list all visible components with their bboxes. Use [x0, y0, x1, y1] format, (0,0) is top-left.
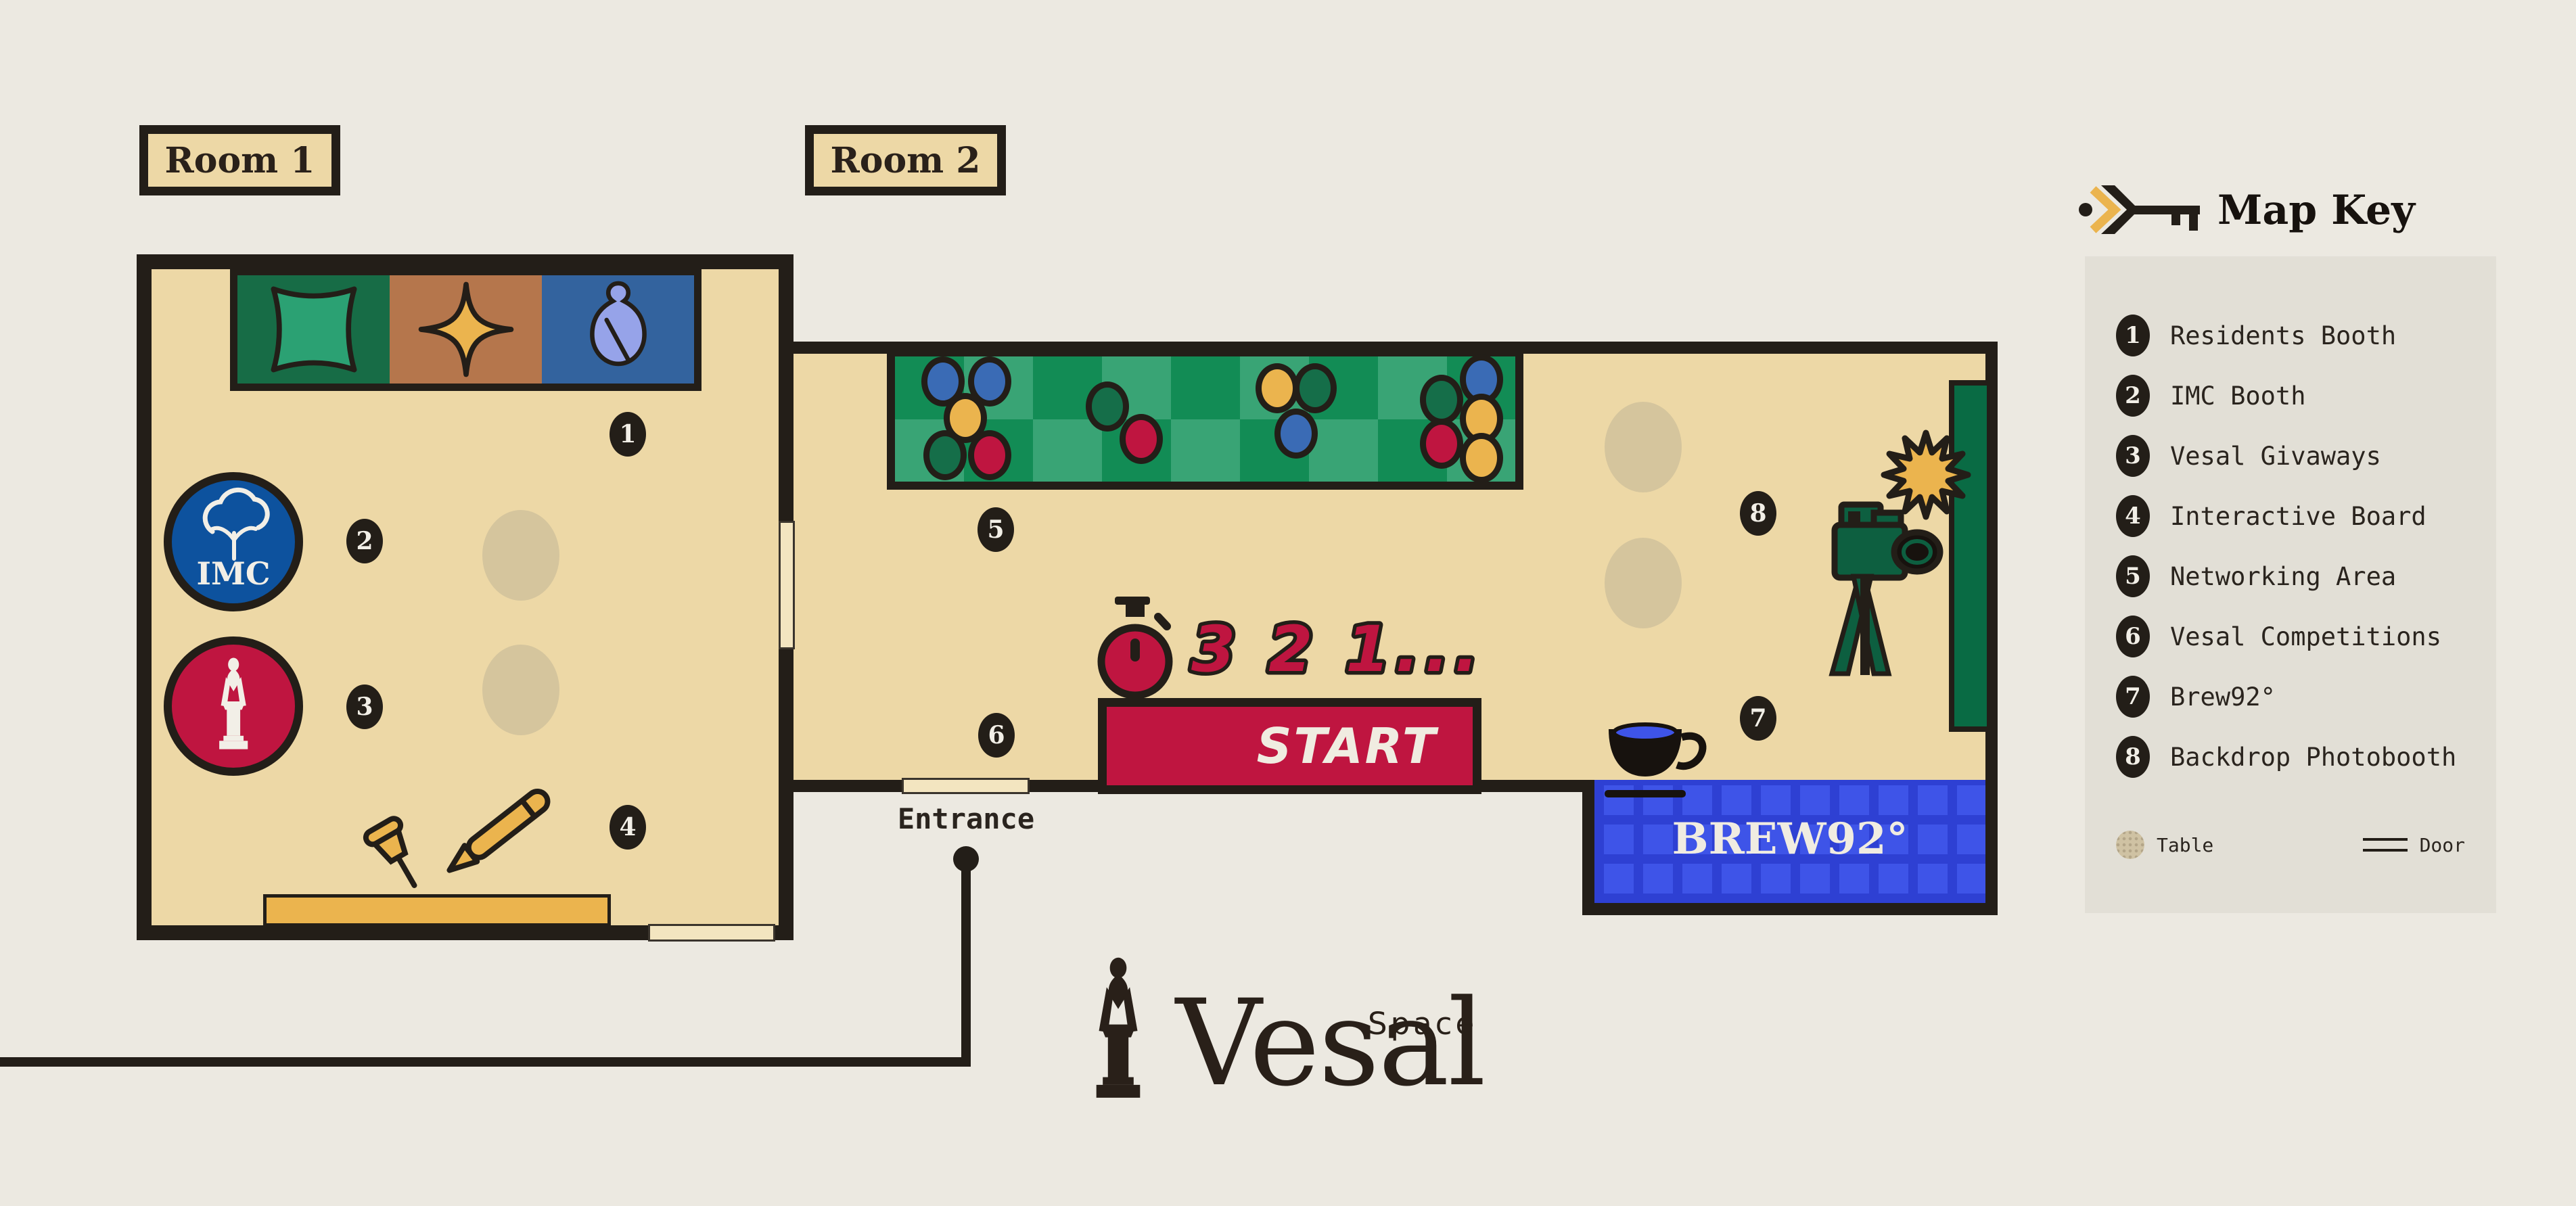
table	[1605, 538, 1682, 628]
rug-dot-red	[968, 430, 1011, 480]
cafe-left-wall	[1582, 780, 1594, 915]
rug-dot-blue	[1274, 409, 1318, 459]
room1-label: Room 1	[165, 140, 315, 181]
entrance-door	[902, 778, 1030, 794]
room2-bottom-wall-left	[793, 780, 902, 792]
map-marker-4: 4	[609, 805, 646, 850]
table	[482, 510, 559, 601]
legend-item-6-number: 6	[2116, 616, 2150, 657]
table	[1605, 402, 1682, 492]
rug-dot-red	[1120, 414, 1163, 464]
residents-booth-panels	[230, 268, 701, 391]
imc-text: IMC	[196, 555, 270, 592]
rug-dot-green	[1293, 363, 1337, 413]
imc-booth-circle: IMC	[160, 468, 307, 616]
rug-dot-red	[1420, 419, 1463, 469]
vase-icon	[576, 277, 660, 382]
legend-item-4: 4 Interactive Board	[2116, 495, 2426, 537]
countdown-text: 3 2 1...	[1187, 607, 1498, 689]
map-marker-2: 2	[346, 519, 383, 563]
legend-item-7: 7 Brew92°	[2116, 676, 2276, 718]
entrance-label: Entrance	[858, 802, 1074, 835]
table	[482, 645, 559, 735]
map-marker-8: 8	[1740, 491, 1776, 536]
map-marker-7-number: 7	[1749, 704, 1766, 733]
pen-icon	[425, 763, 567, 905]
legend-item-5: 5 Networking Area	[2116, 555, 2396, 597]
map-marker-7: 7	[1740, 696, 1776, 741]
room1-bottom-door	[648, 924, 775, 942]
legend-item-5-number: 5	[2116, 555, 2150, 597]
room1-label-box: Room 1	[139, 125, 340, 195]
entrance-path-vertical	[961, 869, 971, 1067]
legend-item-8: 8 Backdrop Photobooth	[2116, 736, 2456, 778]
jagged-canvas-icon	[263, 279, 365, 380]
flash-starburst-icon	[1884, 433, 1968, 517]
table-symbol-label: Table	[2157, 834, 2213, 856]
room1-room2-door	[779, 521, 795, 649]
room2-label: Room 2	[831, 140, 981, 181]
map-marker-4-number: 4	[619, 813, 636, 841]
map-marker-2-number: 2	[356, 527, 373, 555]
map-marker-1: 1	[609, 412, 646, 457]
rug-dot-green	[923, 430, 967, 480]
venue-map: Room 1 Room 2 IMC	[0, 0, 2576, 1206]
cafe-bottom-wall	[1582, 903, 1998, 915]
table-symbol-icon	[2116, 831, 2144, 859]
door-symbol-label: Door	[2420, 834, 2465, 856]
brand-name: Vesal	[1176, 974, 1485, 1113]
camera-tripod-icon	[1826, 419, 2002, 683]
legend-item-1: 1 Residents Booth	[2116, 315, 2396, 356]
map-marker-5-number: 5	[987, 515, 1004, 544]
door-symbol-icon	[2363, 838, 2408, 852]
countdown-numbers: 3 2 1...	[1191, 613, 1484, 687]
stopwatch-icon	[1090, 595, 1180, 703]
map-marker-1-number: 1	[619, 420, 636, 448]
legend-item-2-number: 2	[2116, 375, 2150, 417]
map-marker-5: 5	[977, 507, 1014, 552]
brand-subtitle: Space	[1368, 1006, 1477, 1042]
room2-label-box: Room 2	[805, 125, 1006, 195]
map-marker-3-number: 3	[356, 693, 373, 721]
rug-dot-green	[1420, 375, 1463, 425]
brew92-label: BREW92°	[1594, 814, 1985, 864]
start-banner: START	[1098, 698, 1481, 794]
entrance-path-horizontal	[0, 1057, 971, 1067]
legend-item-7-label: Brew92°	[2170, 682, 2276, 712]
map-marker-3: 3	[346, 685, 383, 729]
rug-dot-green	[1086, 381, 1129, 432]
residents-panel-brown	[390, 275, 542, 384]
rug-dot-gold	[1460, 433, 1503, 483]
legend-item-5-label: Networking Area	[2170, 562, 2396, 591]
key-icon	[2077, 179, 2205, 241]
legend-item-3: 3 Vesal Givaways	[2116, 435, 2381, 477]
legend-item-4-number: 4	[2116, 495, 2150, 537]
start-banner-label: START	[1257, 718, 1437, 774]
rug-dot-gold	[1256, 363, 1299, 413]
legend-item-6: 6 Vesal Competitions	[2116, 616, 2441, 657]
legend-item-7-number: 7	[2116, 676, 2150, 718]
vesal-giveaways-circle	[160, 632, 307, 780]
map-marker-6: 6	[978, 713, 1015, 758]
legend-symbols-row: Table Door	[2116, 831, 2465, 859]
brand-statue-icon	[1078, 955, 1158, 1109]
legend-item-4-label: Interactive Board	[2170, 502, 2426, 531]
legend-item-1-label: Residents Booth	[2170, 321, 2396, 350]
legend-item-8-number: 8	[2116, 736, 2150, 778]
residents-panel-blue	[542, 275, 694, 384]
map-key-title: Map Key	[2217, 187, 2415, 234]
legend-item-3-label: Vesal Givaways	[2170, 442, 2381, 471]
legend-item-8-label: Backdrop Photobooth	[2170, 743, 2456, 772]
map-marker-8-number: 8	[1749, 499, 1766, 528]
legend-item-3-number: 3	[2116, 435, 2150, 477]
legend-item-6-label: Vesal Competitions	[2170, 622, 2441, 651]
legend-item-2: 2 IMC Booth	[2116, 375, 2305, 417]
residents-panel-green	[237, 275, 390, 384]
legend-item-1-number: 1	[2116, 315, 2150, 356]
legend-item-2-label: IMC Booth	[2170, 381, 2305, 411]
map-marker-6-number: 6	[988, 721, 1005, 749]
coffee-cup-icon	[1598, 722, 1716, 807]
entrance-dot	[953, 846, 979, 872]
four-point-star-icon	[415, 279, 517, 380]
